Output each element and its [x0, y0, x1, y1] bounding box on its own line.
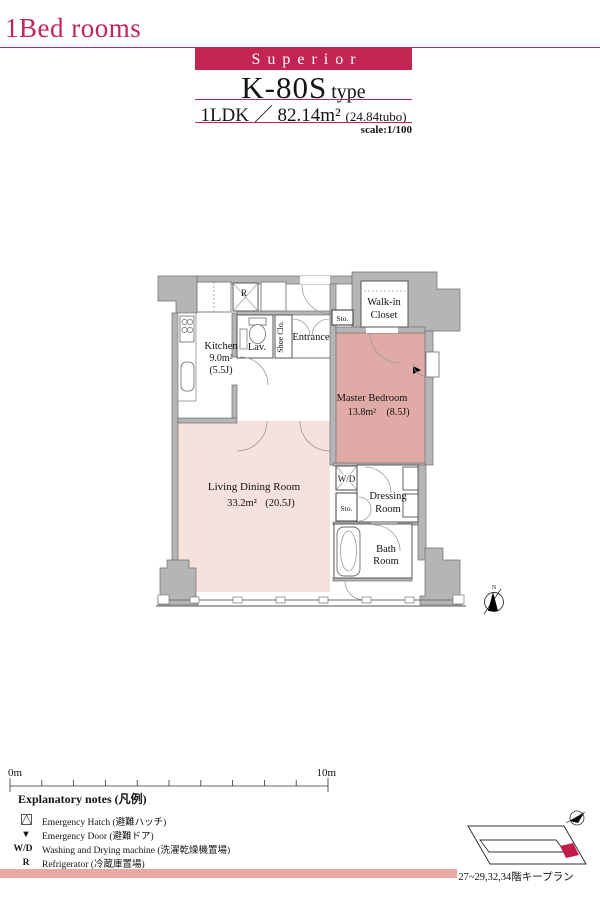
master-bedroom-tatami: (8.5J) [386, 407, 409, 418]
legend-row-refrigerator: R Refrigerator (冷蔵庫置場) [18, 856, 348, 870]
key-plan-caption: 27~29,32,34階キープラン [458, 871, 573, 883]
wd-symbol: W/D [12, 844, 34, 854]
footer-stripe [0, 869, 457, 878]
emergency-door-legend-icon: ▼ [18, 830, 34, 840]
shoe-closet-label: Shoe Clo. [276, 321, 285, 353]
floor-plan: R [0, 0, 600, 900]
bedroom-window [426, 352, 439, 377]
north-compass-icon: N [484, 585, 504, 614]
vanity-icon [403, 467, 418, 490]
bathtub-icon [337, 527, 360, 576]
living-tatami: (20.5J) [265, 498, 295, 509]
scale-start-label: 0m [8, 767, 23, 779]
refrigerator-label: R [241, 288, 247, 298]
lav-cabinet-icon [240, 329, 247, 349]
legend-label: Emergency Door (避難ドア) [42, 828, 154, 842]
master-bedroom-label: Master Bedroom [337, 393, 408, 404]
lavatory-label: Lav. [248, 342, 266, 353]
wic-label-1: Walk-in [367, 297, 401, 308]
kitchen-label: Kitchen [204, 341, 238, 352]
bath-label-2: Room [373, 556, 399, 567]
refrigerator-symbol: R [18, 858, 34, 868]
kitchen-tatami: (5.5J) [209, 365, 232, 376]
legend-row-wd: W/D Washing and Drying machine (洗濯乾燥機置場) [18, 842, 348, 856]
living-label: Living Dining Room [208, 481, 301, 493]
legend-label: Refrigerator (冷蔵庫置場) [42, 856, 145, 870]
sink-icon [181, 362, 194, 391]
scale-bar: 0m 10m [8, 767, 336, 792]
scale-end-label: 10m [316, 767, 336, 779]
dressing-label-2: Room [375, 504, 401, 515]
legend: Explanatory notes (凡例) Emergency Hatch (… [18, 790, 348, 870]
kitchen-counter [178, 313, 196, 401]
legend-row-hatch: Emergency Hatch (避難ハッチ) [18, 814, 348, 828]
key-plan: 27~29,32,34階キープラン [458, 811, 586, 883]
wic-label-2: Closet [371, 310, 398, 321]
stove-icon [180, 316, 194, 342]
kitchen-area: 9.0m² [209, 353, 232, 364]
emergency-hatch-icon [18, 814, 34, 828]
toilet-icon [249, 318, 266, 344]
bath-label-1: Bath [376, 544, 397, 555]
living-area: 33.2m² [227, 498, 257, 509]
master-bedroom-area: 13.8m² [348, 407, 376, 418]
legend-title: Explanatory notes (凡例) [18, 790, 348, 807]
balcony-rail [156, 595, 466, 606]
wd-label: W/D [338, 474, 356, 484]
dressing-label-1: Dressing [369, 491, 407, 502]
storage-top-label: Sto. [337, 314, 349, 323]
compass-n-label: N [492, 585, 497, 591]
key-plan-compass-icon [566, 811, 585, 825]
legend-label: Emergency Hatch (避難ハッチ) [42, 814, 166, 828]
entrance-label: Entrance [292, 332, 330, 343]
storage-mid-label: Sto. [341, 504, 353, 513]
legend-row-door: ▼ Emergency Door (避難ドア) [18, 828, 348, 842]
legend-label: Washing and Drying machine (洗濯乾燥機置場) [42, 842, 230, 856]
